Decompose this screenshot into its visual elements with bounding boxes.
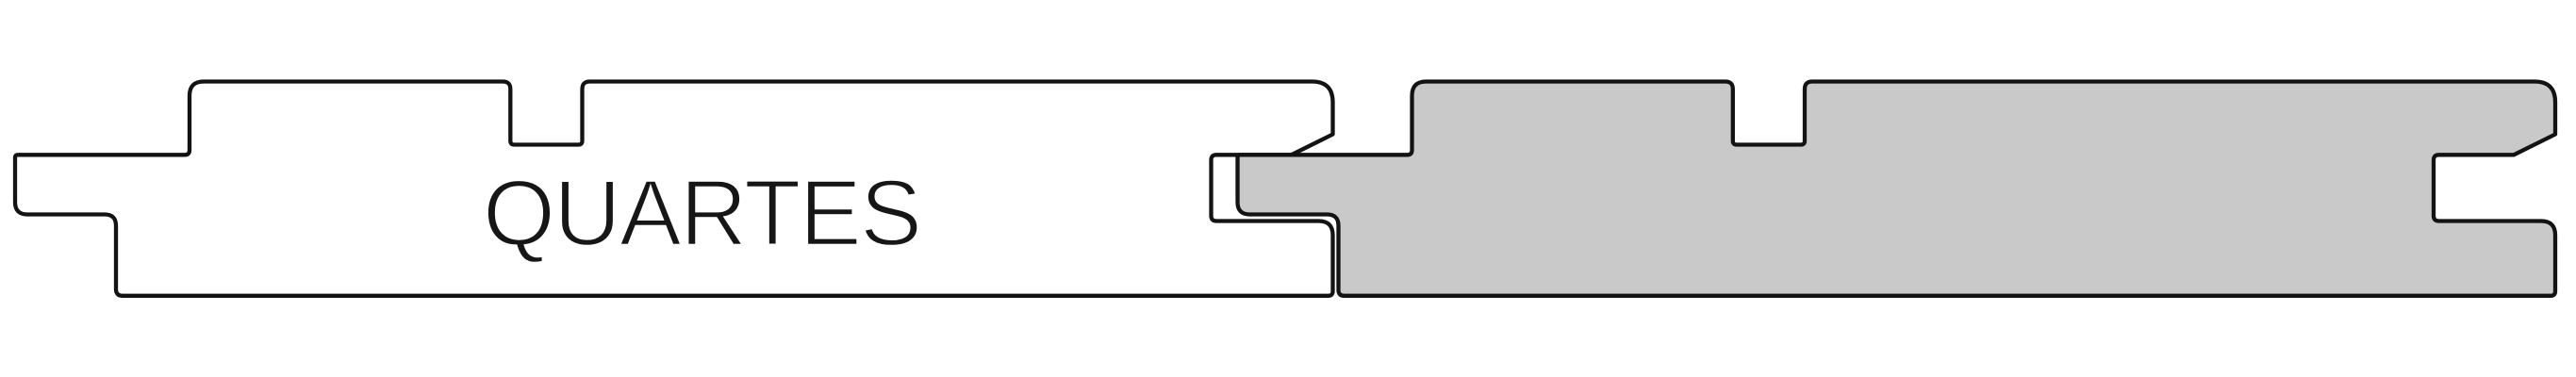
svg-text:QUARTES: QUARTES — [483, 160, 920, 265]
